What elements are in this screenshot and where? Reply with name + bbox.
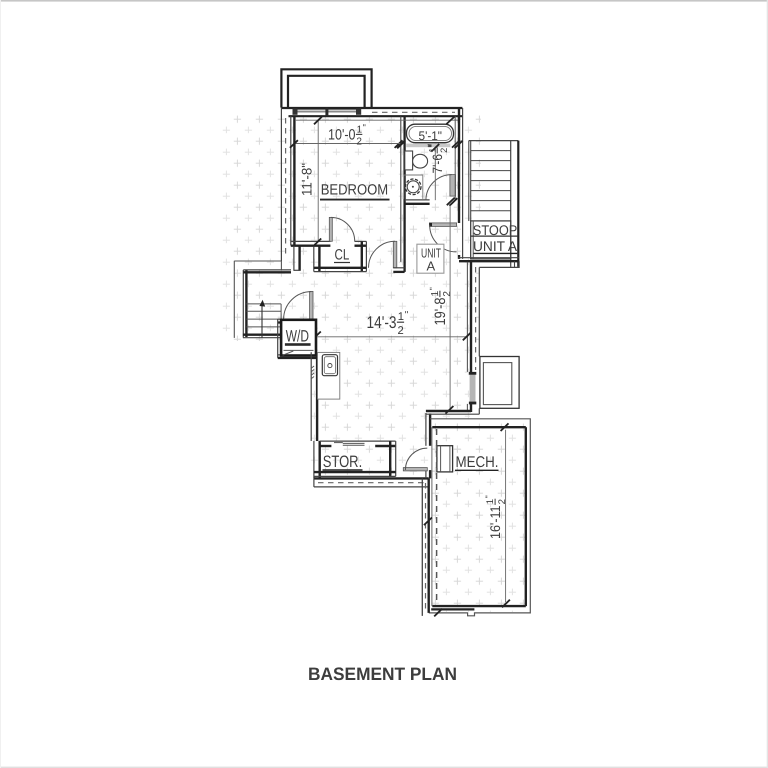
svg-text:16'-11: 16'-11 — [487, 505, 503, 539]
svg-text:2: 2 — [497, 499, 508, 504]
svg-text:1: 1 — [427, 148, 437, 153]
svg-text:STOR.: STOR. — [323, 453, 363, 471]
svg-text:2: 2 — [356, 137, 362, 148]
svg-text:CL: CL — [335, 247, 350, 264]
svg-text:7'-6: 7'-6 — [430, 154, 445, 174]
svg-text:STOOP: STOOP — [473, 222, 518, 238]
svg-text:5'-1": 5'-1" — [419, 129, 443, 143]
svg-text:14'-3: 14'-3 — [367, 313, 397, 332]
svg-text:BASEMENT PLAN: BASEMENT PLAN — [308, 664, 457, 684]
svg-text:UNIT A: UNIT A — [473, 238, 518, 254]
svg-text:1: 1 — [398, 311, 404, 323]
svg-text:": " — [363, 123, 366, 133]
svg-text:MECH.: MECH. — [456, 454, 499, 471]
svg-text:11'-8": 11'-8" — [299, 163, 315, 196]
svg-text:": " — [405, 310, 409, 321]
svg-text:BEDROOM: BEDROOM — [321, 182, 389, 198]
svg-text:2: 2 — [398, 325, 404, 337]
svg-text:19'-8: 19'-8 — [432, 298, 449, 326]
svg-text:": " — [483, 495, 493, 498]
svg-text:2: 2 — [439, 148, 449, 153]
svg-text:W/D: W/D — [286, 328, 309, 346]
svg-text:A: A — [426, 259, 435, 274]
svg-text:": " — [428, 287, 438, 290]
svg-text:1: 1 — [485, 499, 496, 504]
svg-text:10'-0: 10'-0 — [328, 127, 356, 144]
svg-text:": " — [426, 144, 436, 147]
svg-text:2: 2 — [442, 291, 453, 297]
